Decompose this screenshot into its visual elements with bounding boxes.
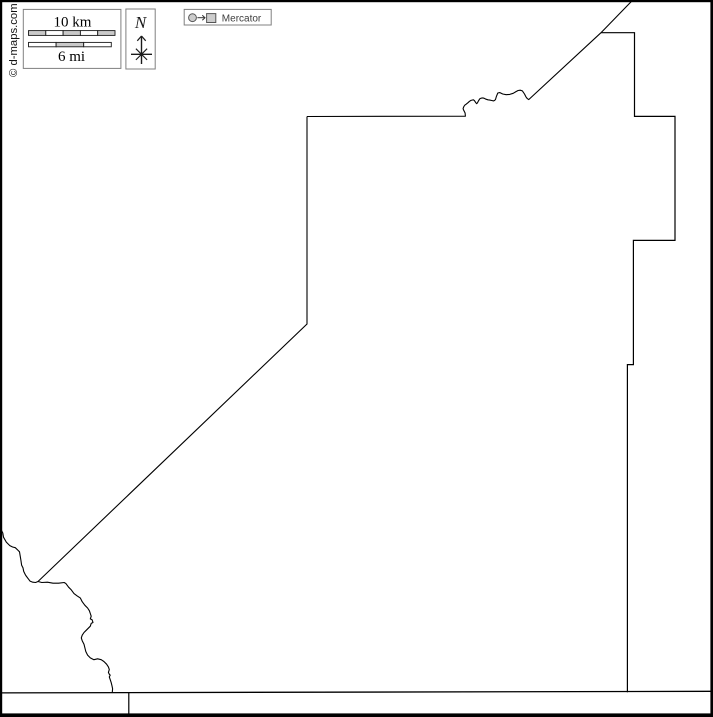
svg-text:6 mi: 6 mi (58, 49, 85, 65)
svg-text:10 km: 10 km (54, 15, 92, 31)
svg-text:© d-maps.com: © d-maps.com (8, 3, 20, 77)
svg-text:N: N (134, 13, 148, 32)
svg-text:Mercator: Mercator (222, 14, 262, 25)
